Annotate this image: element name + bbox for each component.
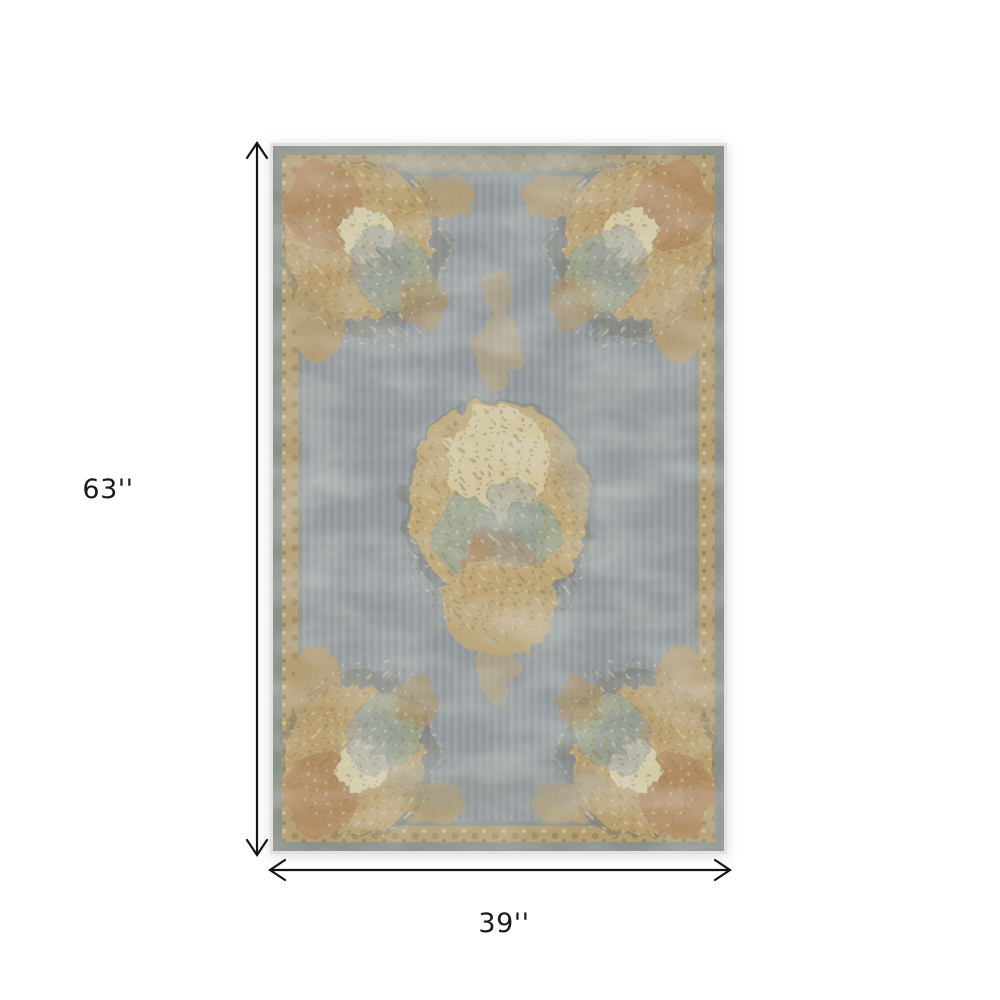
product-image-canvas: 63'' 39'' (0, 0, 1000, 1000)
rug-graphic (270, 143, 727, 854)
arrow-down-icon (247, 840, 267, 855)
arrow-up-icon (247, 143, 267, 158)
rug-wear-overlay (270, 143, 727, 854)
arrow-left-icon (270, 860, 285, 880)
rug-image (270, 143, 727, 854)
arrow-right-icon (715, 860, 730, 880)
height-arrow (247, 143, 267, 855)
width-dimension-label: 39'' (452, 908, 556, 939)
height-dimension-label: 63'' (60, 474, 156, 505)
width-arrow (270, 860, 730, 880)
